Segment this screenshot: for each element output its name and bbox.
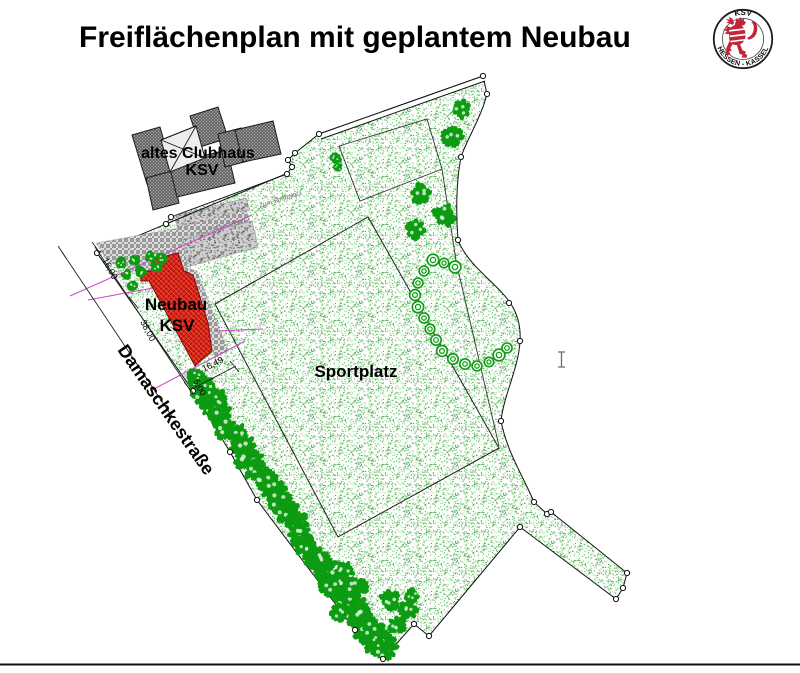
svg-text:altes Clubhaus: altes Clubhaus bbox=[141, 145, 255, 162]
svg-text:Freiflächenplan mit geplantem: Freiflächenplan mit geplantem Neubau bbox=[79, 21, 631, 54]
svg-text:Neubau: Neubau bbox=[145, 295, 207, 314]
svg-text:KSV: KSV bbox=[186, 162, 219, 179]
svg-text:KSV: KSV bbox=[160, 316, 196, 335]
svg-text:KSV: KSV bbox=[733, 8, 753, 18]
svg-text:Sportplatz: Sportplatz bbox=[314, 362, 397, 381]
